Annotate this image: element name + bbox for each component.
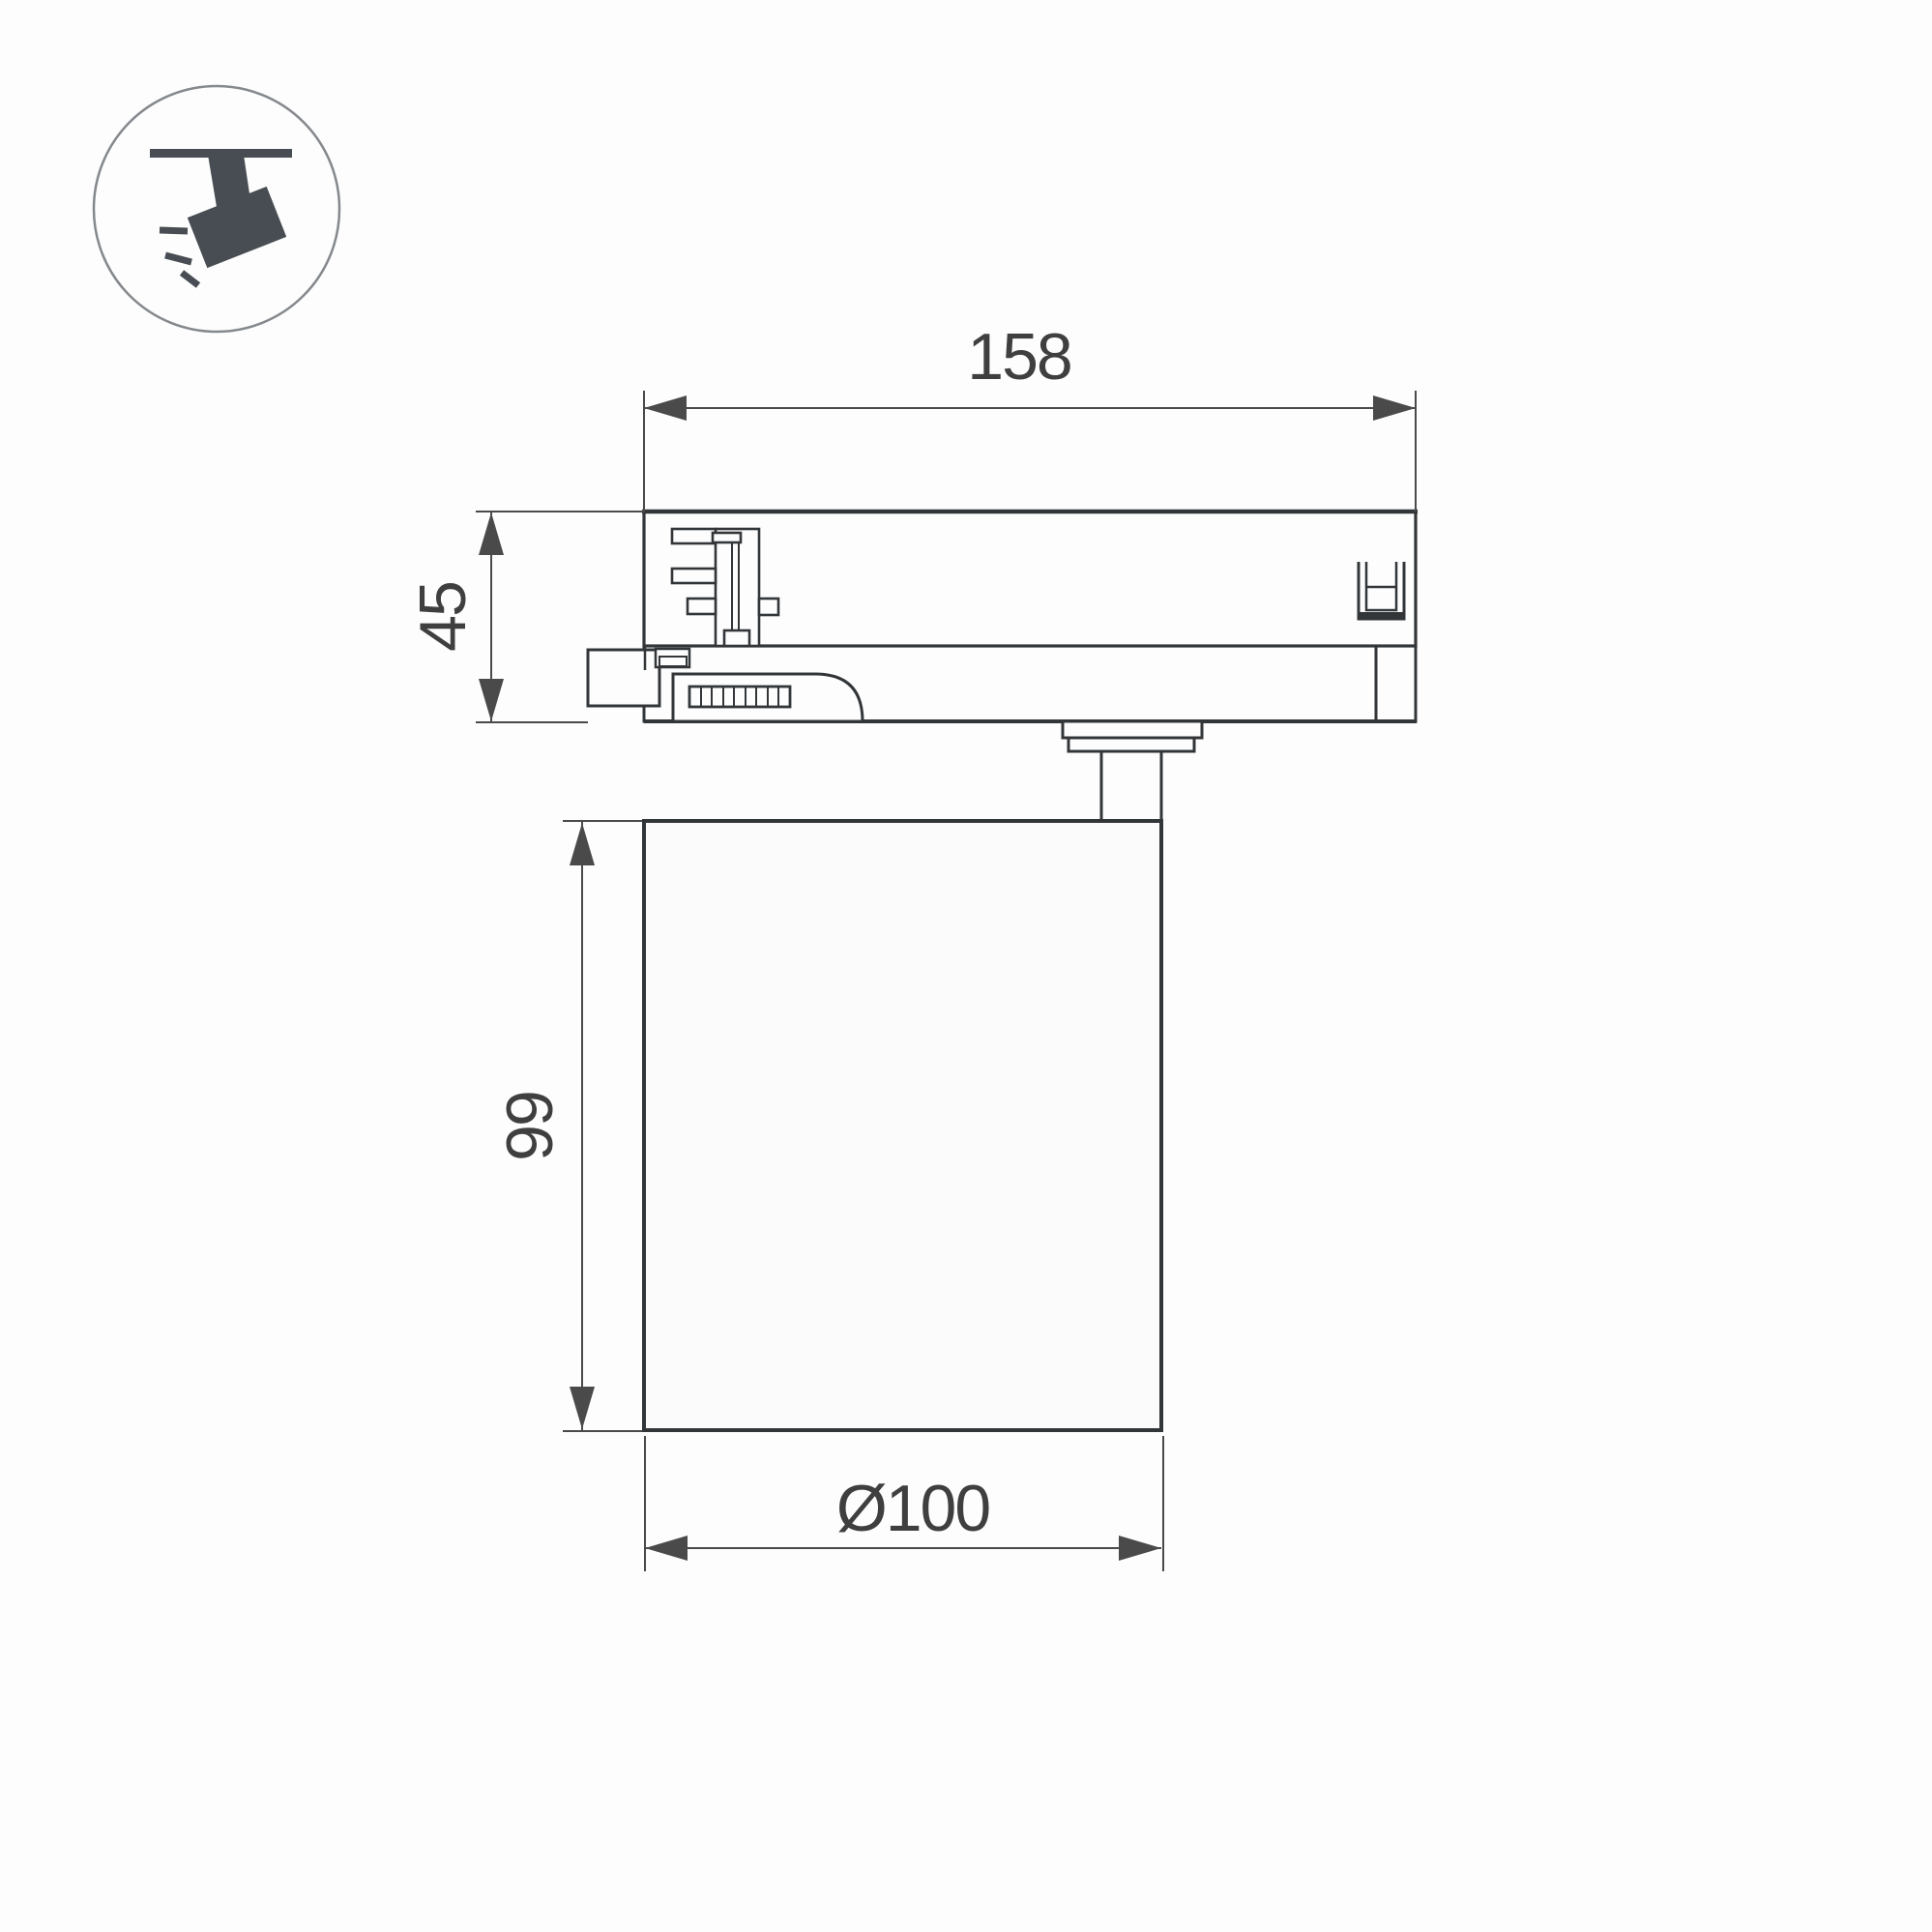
contact-prong-top <box>672 529 716 543</box>
arrowhead-left <box>645 1536 688 1561</box>
arrowhead-left <box>644 395 687 421</box>
technical-drawing-canvas: 158 45 99 Ø100 <box>0 0 1932 1932</box>
contact-foot <box>724 630 749 646</box>
dimension-label-adapter-length: 158 <box>967 320 1070 394</box>
arrowhead-right <box>1373 395 1416 421</box>
track-spotlight-icon <box>94 86 339 332</box>
neck-stem <box>1101 751 1161 821</box>
adapter-contact-block <box>672 529 778 646</box>
arrowhead-top <box>479 512 504 555</box>
pivot-neck <box>1063 721 1202 821</box>
adapter-lock-hook <box>1359 562 1404 619</box>
adapter-phase-switch-box <box>588 650 659 706</box>
contact-right-flange <box>759 599 778 615</box>
track-adapter-side-view <box>588 512 1418 721</box>
dimension-label-adapter-height: 45 <box>406 582 480 652</box>
dimension-adapter-length: 158 <box>644 320 1416 512</box>
lamp-body-front-view <box>644 821 1161 1430</box>
neck-plate-upper <box>1063 721 1202 738</box>
track-light-dimension-drawing: 158 45 99 Ø100 <box>0 0 1932 1932</box>
contact-cap <box>713 533 741 542</box>
contact-prong-bottom <box>688 599 716 614</box>
arrowhead-right <box>1119 1536 1161 1561</box>
arrowhead-bottom <box>570 1387 595 1429</box>
arrowhead-bottom <box>479 679 504 721</box>
dimension-label-body-diameter: Ø100 <box>836 1472 990 1545</box>
contact-prong-middle <box>672 569 716 583</box>
arrowhead-top <box>570 823 595 865</box>
adapter-small-connector <box>656 649 689 667</box>
dimension-body-diameter: Ø100 <box>645 1436 1163 1571</box>
dimension-body-height: 99 <box>493 821 642 1431</box>
dimension-label-body-height: 99 <box>493 1092 567 1161</box>
adapter-ribbed-switch <box>689 687 790 707</box>
neck-plate-lower <box>1068 738 1194 751</box>
